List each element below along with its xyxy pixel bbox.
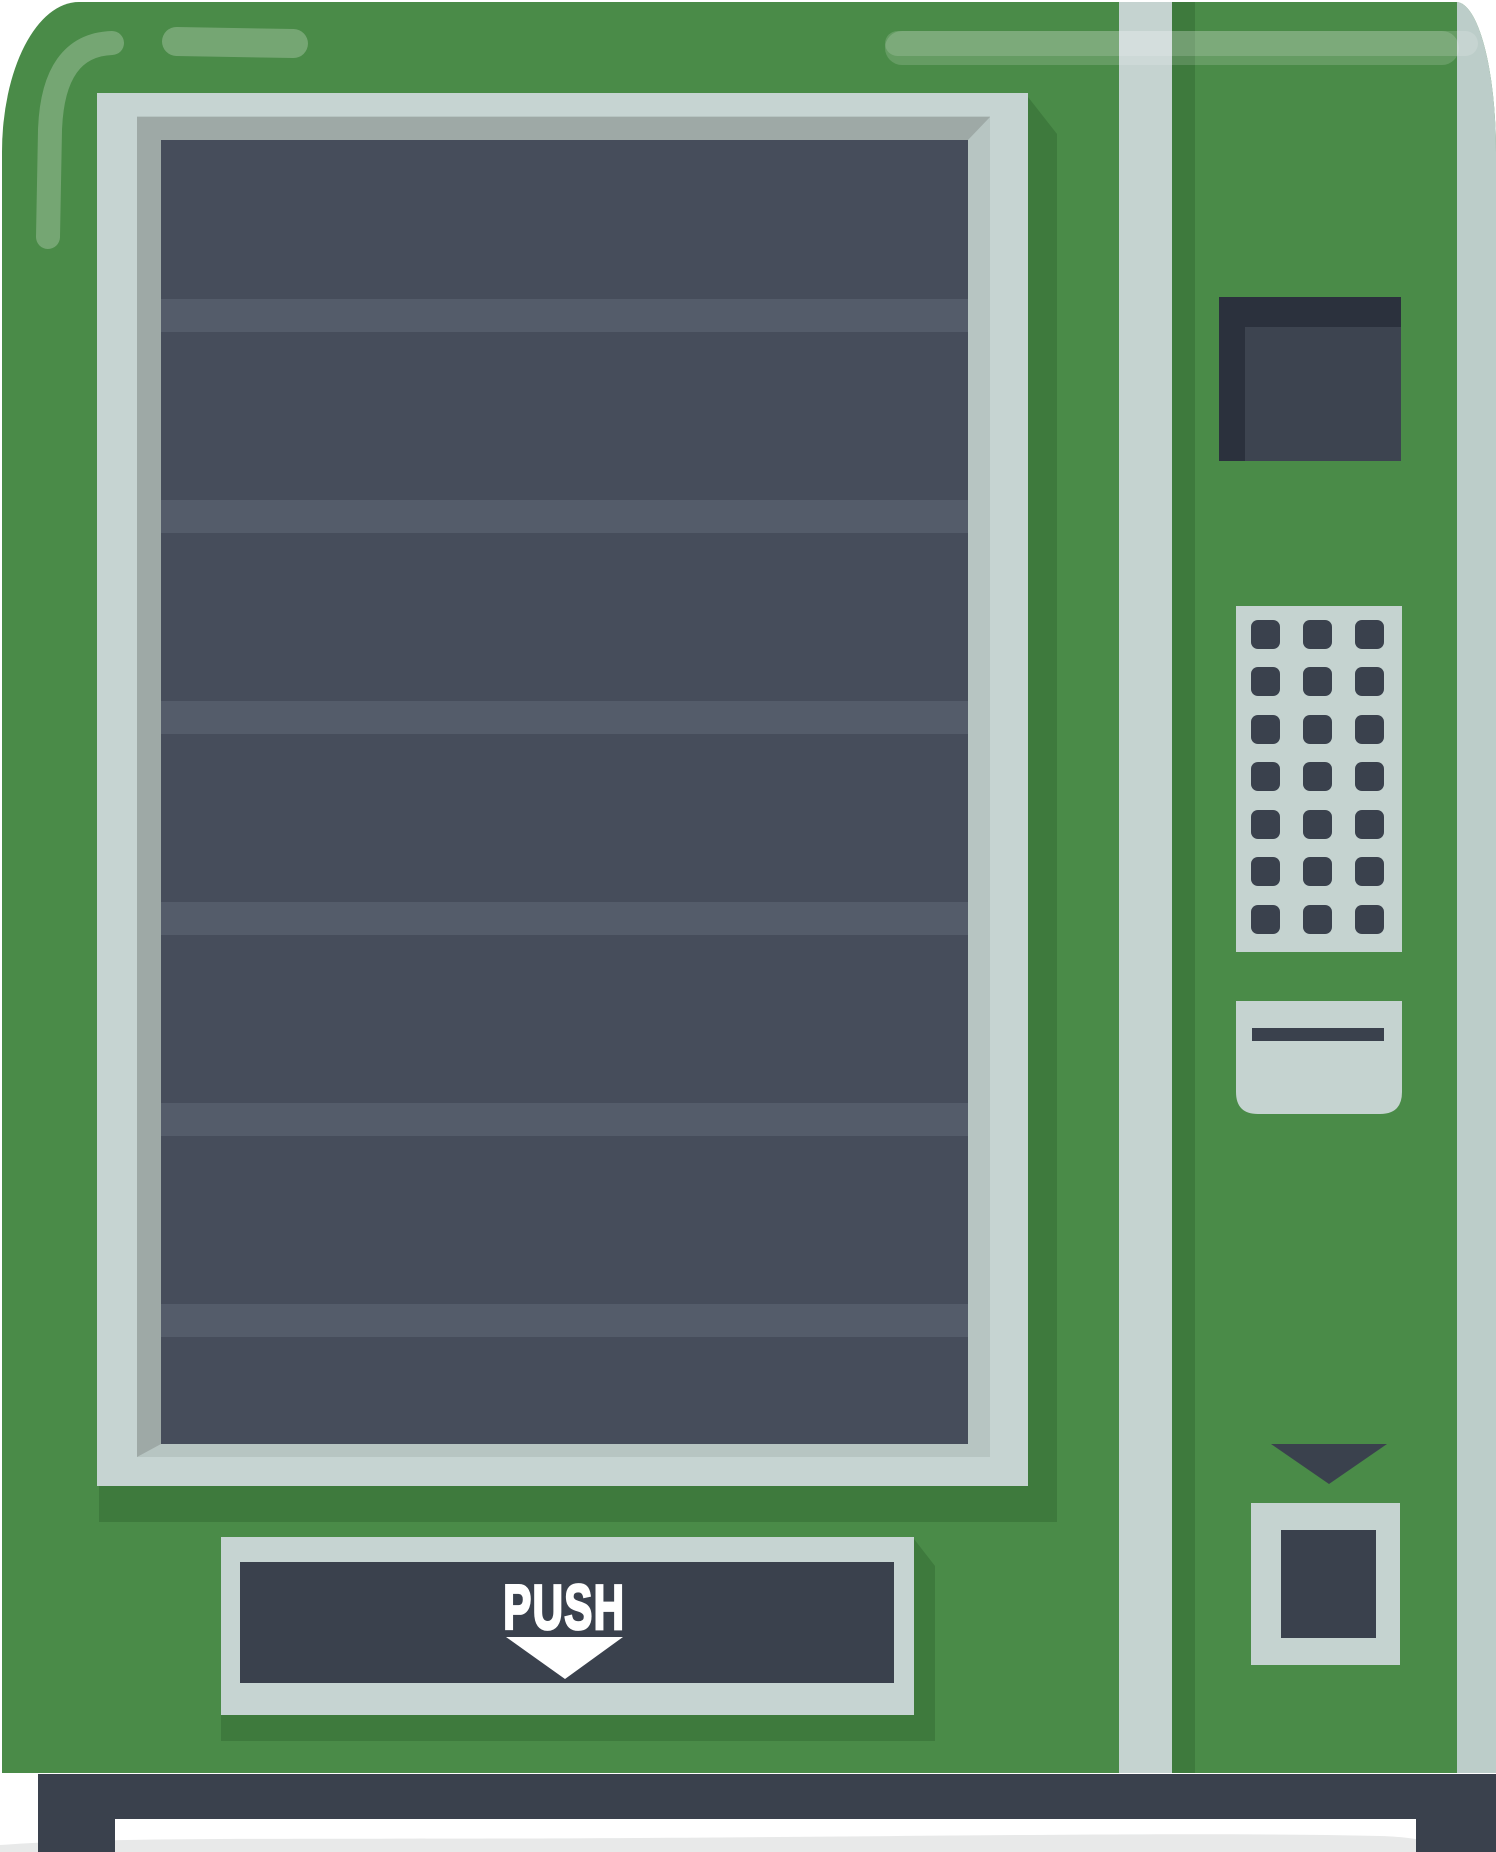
svg-text:PUSH: PUSH xyxy=(503,1574,625,1643)
